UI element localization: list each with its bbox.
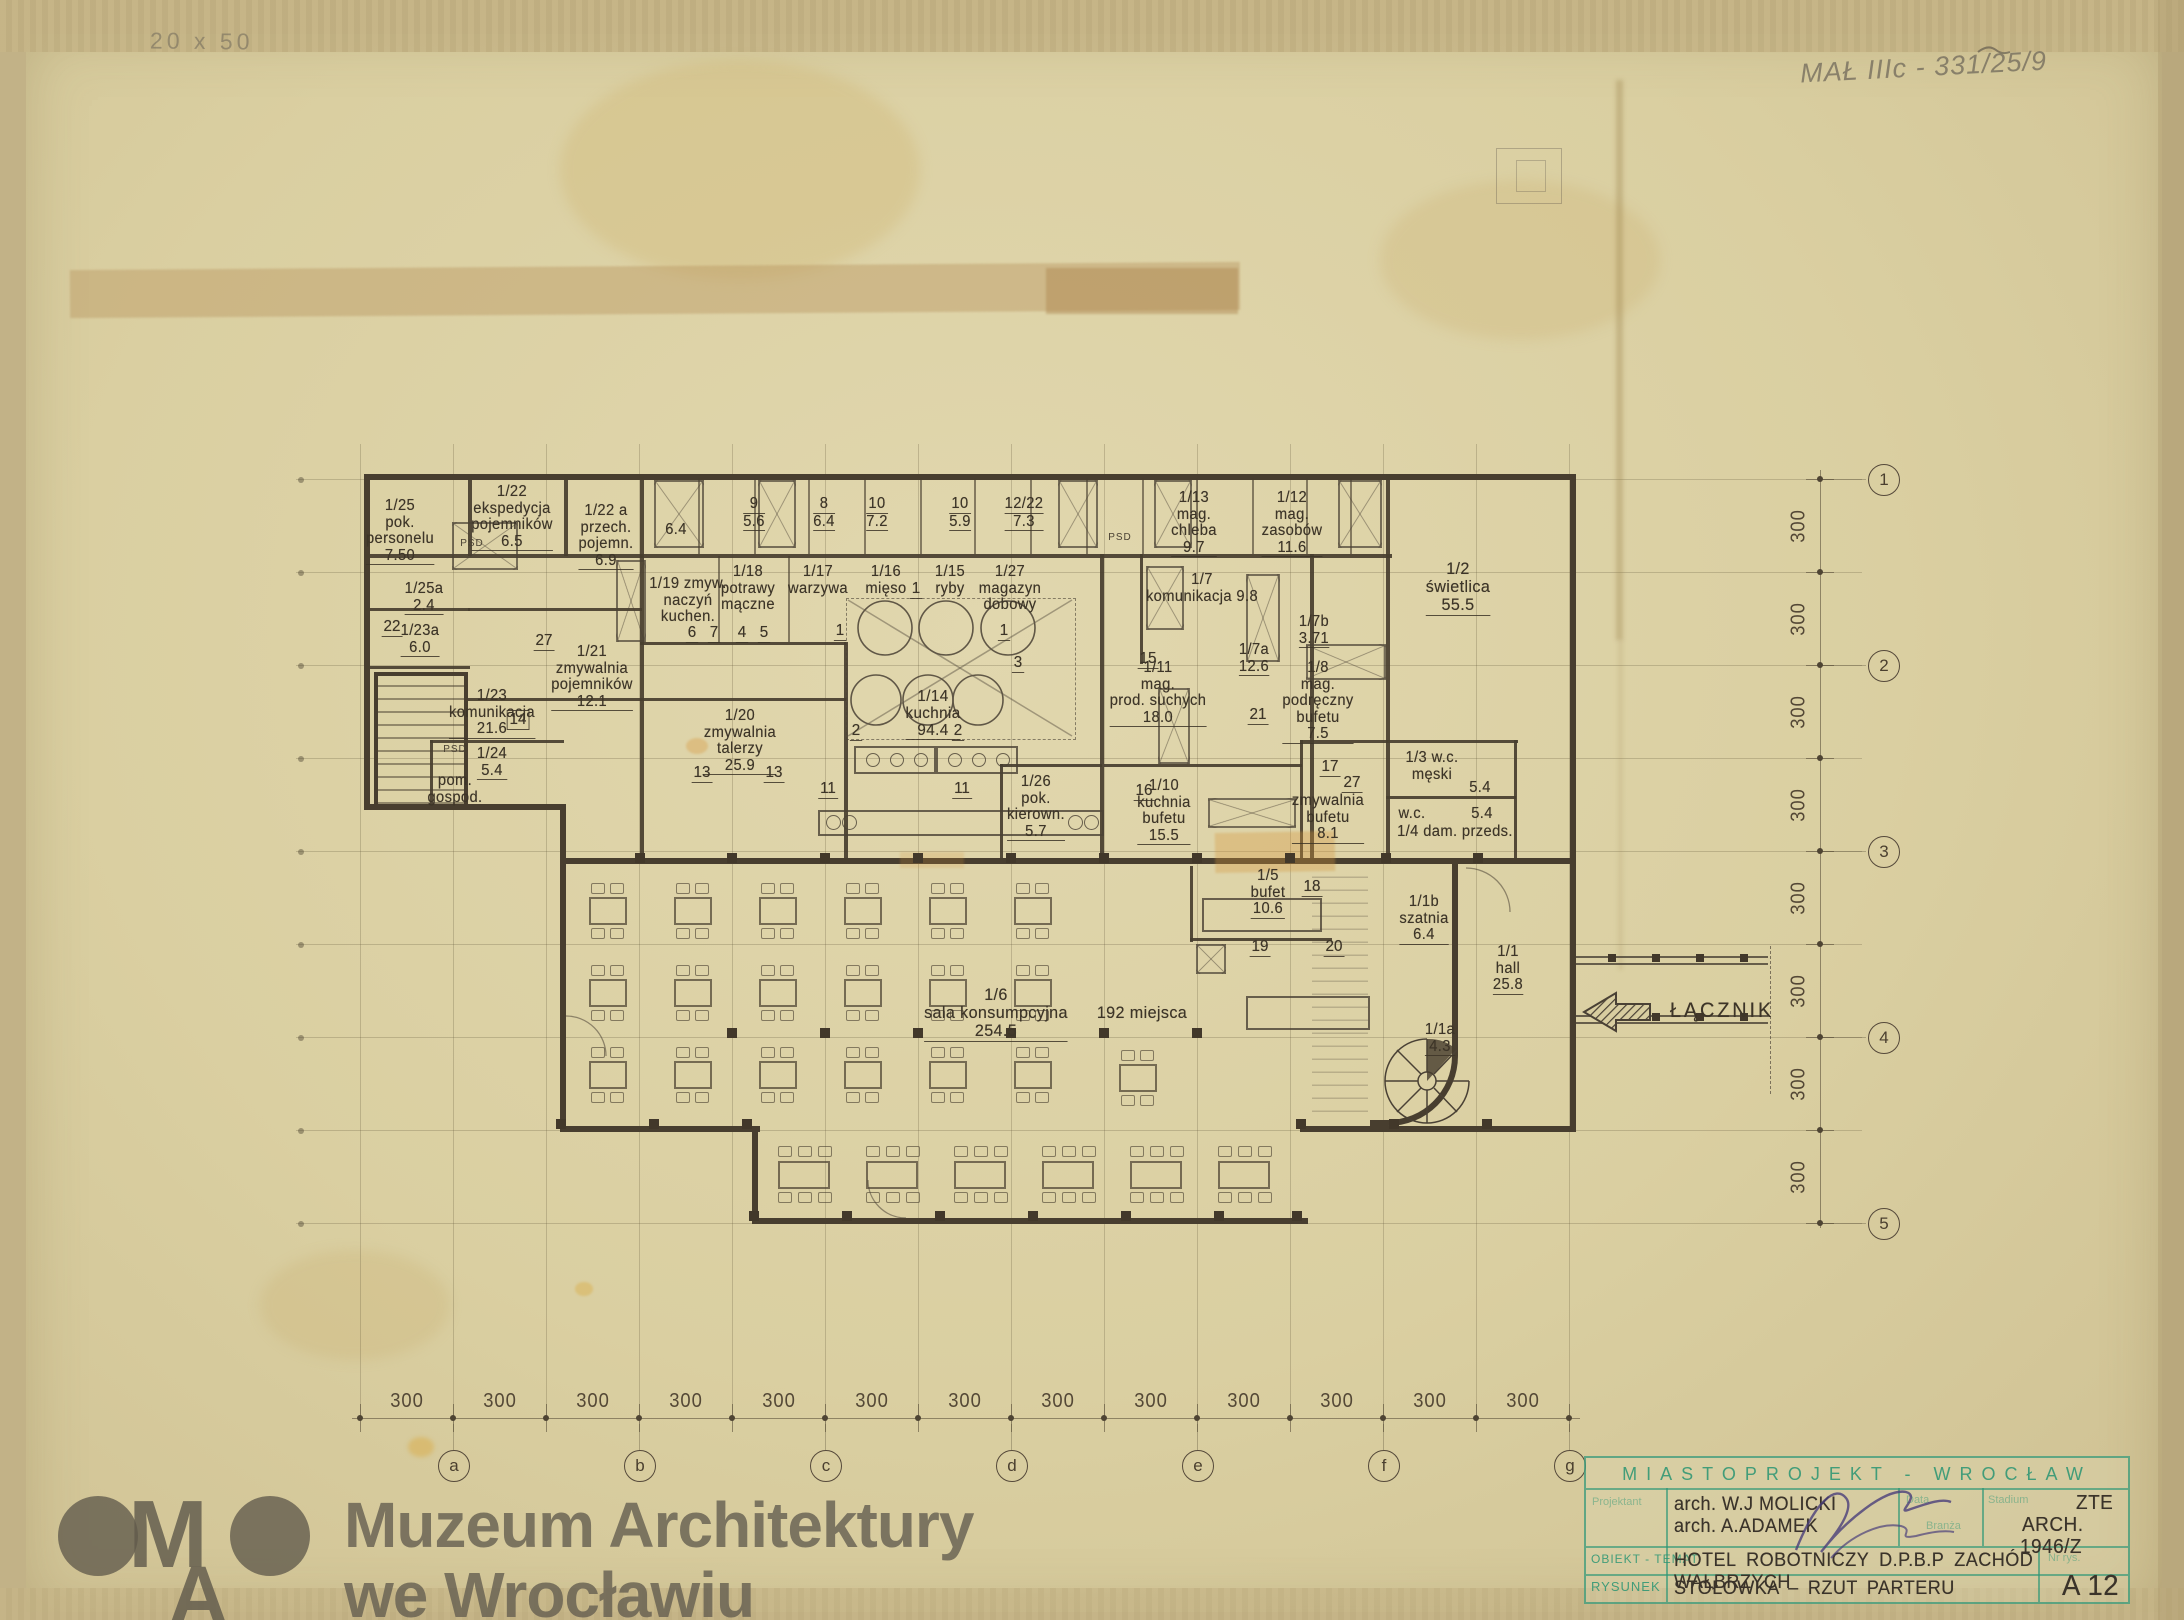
dim-label-300: 300	[576, 1390, 609, 1413]
chair-icon	[798, 1192, 812, 1203]
chair-icon	[1150, 1192, 1164, 1203]
chair-icon	[1238, 1146, 1252, 1157]
chair-icon	[695, 1047, 709, 1058]
wall-main	[1570, 474, 1576, 1132]
table-icon	[759, 1061, 797, 1089]
room-label-line: 1/6	[924, 986, 1068, 1004]
reference-number: 3	[1012, 654, 1024, 673]
counter-burner-icon	[914, 753, 928, 767]
structural-column	[635, 853, 645, 863]
chair-icon	[1062, 1146, 1076, 1157]
corridor-column	[1652, 954, 1660, 962]
dim-label-300: 300	[1788, 1067, 1811, 1100]
chair-icon	[954, 1192, 968, 1203]
connector-corridor-wall	[1576, 963, 1768, 965]
dim-label-300: 300	[1506, 1390, 1539, 1413]
dining-table-group	[663, 1042, 721, 1106]
corridor-column	[1696, 954, 1704, 962]
dim-dot	[1817, 1127, 1823, 1133]
room-label-line: 1/25a	[405, 581, 444, 598]
counter-burner-icon	[948, 753, 962, 767]
chair-icon	[1218, 1146, 1232, 1157]
structural-column	[1381, 853, 1391, 863]
room-label: 12/227.3	[1005, 496, 1044, 531]
table-icon	[589, 1061, 627, 1089]
room-label-line: 1/19 zmyw.	[649, 576, 726, 593]
table-icon	[844, 897, 882, 925]
room-label: 1/23a6.0	[401, 623, 440, 657]
table-icon	[1130, 1161, 1182, 1189]
structural-column	[649, 1119, 659, 1129]
room-label-line: podręczny	[1282, 693, 1353, 710]
chair-icon	[798, 1146, 812, 1157]
room-label-line: 1/23	[449, 688, 535, 705]
room-label: 1/7a12.6	[1239, 642, 1269, 676]
chair-icon	[591, 965, 605, 976]
chair-icon	[610, 965, 624, 976]
room-label-line: 12/22	[1005, 496, 1044, 514]
axis-letter: d	[996, 1450, 1028, 1482]
chair-icon	[1150, 1146, 1164, 1157]
reference-number: 1	[834, 622, 846, 641]
room-label-line: hall	[1493, 961, 1523, 978]
axis-leader	[1822, 665, 1866, 666]
label-stage: Stadium	[1988, 1494, 2028, 1506]
room-label-line: dobowy	[979, 597, 1041, 614]
room-label-line: 15.5	[1137, 828, 1190, 846]
room-label-line: 12.1	[551, 694, 633, 712]
structural-column	[1192, 1028, 1202, 1038]
stage-value: ZTE	[2076, 1492, 2113, 1515]
chair-icon	[1035, 1092, 1049, 1103]
room-label: 1/1bszatnia6.4	[1399, 894, 1448, 945]
grid-left-dot	[298, 756, 304, 762]
dim-dot	[1817, 848, 1823, 854]
room-label-line: 1/7a	[1239, 642, 1269, 659]
storage-rack-icon	[1338, 480, 1382, 548]
room-label: pom.gospod.	[427, 773, 482, 806]
chair-icon	[1218, 1192, 1232, 1203]
chair-icon	[865, 1010, 879, 1021]
room-label-line: 1/5	[1251, 868, 1286, 885]
reference-number: 2	[850, 722, 862, 741]
room-label-line: mag.	[1171, 507, 1217, 524]
wall-main	[560, 1126, 760, 1132]
room-label-line: 1/26	[1007, 774, 1065, 791]
bottom-dim-line	[352, 1418, 1580, 1419]
dining-table-group	[1210, 1142, 1276, 1206]
dining-table-group	[1003, 1042, 1061, 1106]
dim-dot	[1817, 569, 1823, 575]
chair-icon	[1130, 1192, 1144, 1203]
grid-line-horizontal	[296, 944, 1862, 945]
serving-counter	[854, 746, 936, 774]
chair-icon	[591, 1010, 605, 1021]
wall-main	[1300, 1126, 1576, 1132]
chair-icon	[1238, 1192, 1252, 1203]
grid-line-horizontal	[296, 758, 1862, 759]
axis-letter: f	[1368, 1450, 1400, 1482]
axis-leader	[453, 1424, 454, 1450]
grid-line-vertical	[1290, 444, 1291, 1420]
counter-burner-icon	[842, 815, 857, 830]
room-label: 1/11mag.prod. suchych18.0	[1110, 660, 1207, 727]
wall-main	[560, 804, 566, 1132]
reference-number: 18	[1302, 878, 1323, 897]
table-icon	[778, 1161, 830, 1189]
room-label-line: naczyń	[649, 593, 726, 610]
dim-label-300: 300	[1788, 695, 1811, 728]
room-label-line: 5.4	[1469, 780, 1491, 797]
room-label: 1/27magazyndobowy	[979, 564, 1041, 614]
chair-icon	[676, 928, 690, 939]
chair-icon	[846, 1010, 860, 1021]
structural-column	[1099, 853, 1109, 863]
chair-icon	[1140, 1095, 1154, 1106]
dim-dot	[1566, 1415, 1572, 1421]
chair-icon	[695, 1010, 709, 1021]
counter-burner-icon	[972, 753, 986, 767]
room-label-line: przech.	[578, 520, 633, 537]
axis-leader	[1822, 1037, 1866, 1038]
room-label: 1/6sala konsumpcyjna254.5	[924, 986, 1068, 1042]
room-label-line: pok.	[366, 515, 434, 532]
structural-column	[742, 1119, 752, 1129]
room-label-line: 9.7	[1171, 540, 1217, 558]
structural-column	[1028, 1211, 1038, 1221]
dining-table-group	[1122, 1142, 1188, 1206]
chair-icon	[695, 1092, 709, 1103]
psd-label: PSD	[443, 744, 467, 755]
grid-left-dot	[298, 1128, 304, 1134]
room-partition	[974, 478, 976, 554]
room-label-line: bufetu	[1282, 710, 1353, 727]
wall-partition	[1386, 740, 1518, 743]
dining-table-group	[1108, 1045, 1166, 1109]
room-label-line: 7.5	[1282, 726, 1353, 744]
grid-left-dot	[298, 570, 304, 576]
room-label-line: ekspedycja	[471, 501, 553, 518]
dim-dot	[1817, 476, 1823, 482]
axis-number: 4	[1868, 1022, 1900, 1054]
dim-dot	[1194, 1415, 1200, 1421]
chair-icon	[866, 1192, 880, 1203]
structural-column	[727, 1028, 737, 1038]
room-label: 1/1a4.3	[1425, 1022, 1455, 1056]
room-label-line: chleba	[1171, 523, 1217, 540]
chair-icon	[610, 1047, 624, 1058]
floor-plan: 300300300300300300300300300300300300300a…	[0, 0, 2184, 1620]
room-label-line: pok.	[1007, 791, 1065, 808]
room-label-line: 1/20	[704, 708, 776, 725]
wall-main	[1104, 858, 1576, 864]
room-label-line: męski	[1406, 767, 1459, 784]
dim-dot	[1008, 1415, 1014, 1421]
room-label-line: mag.	[1282, 677, 1353, 694]
room-label-line: komunikacja 9.8	[1146, 589, 1258, 606]
crease-line	[1618, 640, 1623, 970]
grid-left-dot	[298, 1221, 304, 1227]
axis-leader	[1011, 1424, 1012, 1450]
room-label-line: pojemników	[471, 517, 553, 534]
axis-leader	[1569, 1424, 1570, 1450]
counter-burner-icon	[996, 753, 1010, 767]
room-label-line: gospod.	[427, 790, 482, 807]
dim-label-300: 300	[1788, 509, 1811, 542]
reference-number: 11	[818, 780, 838, 799]
storage-rack-icon	[1208, 798, 1296, 828]
chair-icon	[865, 1092, 879, 1103]
chair-icon	[818, 1146, 832, 1157]
room-label-line: 254.5	[924, 1022, 1068, 1041]
room-label: 1/22 aprzech.pojemn.6.9	[578, 503, 633, 570]
room-label-line: 1/13	[1171, 490, 1217, 507]
room-label-line: 10.6	[1251, 901, 1286, 919]
wall-main	[752, 1126, 758, 1224]
chair-icon	[950, 928, 964, 939]
room-label-line: 1/1a	[1425, 1022, 1455, 1039]
axis-leader	[1383, 1424, 1384, 1450]
chair-icon	[1140, 1050, 1154, 1061]
room-label-line: mag.	[1110, 677, 1207, 694]
room-label: zmywalniabufetu8.1	[1292, 793, 1364, 844]
corridor-column	[1652, 1013, 1660, 1021]
reference-number: 13	[764, 764, 785, 783]
dim-dot	[543, 1415, 549, 1421]
room-label-line: 5.7	[1007, 824, 1065, 842]
reference-number: 2	[952, 722, 964, 741]
room-label-line: 1/3 w.c.	[1406, 750, 1459, 767]
grid-left-dot	[298, 849, 304, 855]
title-block: MIASTOPROJEKT - WROCŁAW Projektant Data …	[1584, 1456, 2130, 1604]
chair-icon	[591, 883, 605, 894]
chair-icon	[818, 1192, 832, 1203]
table-icon	[1014, 1061, 1052, 1089]
dining-table-group	[833, 878, 891, 942]
room-label: w.c.	[1399, 806, 1426, 823]
wall-partition	[564, 476, 568, 556]
room-label-line: 1/17	[788, 564, 848, 581]
counter-burner-icon	[866, 753, 880, 767]
chair-icon	[780, 1010, 794, 1021]
wall-partition	[1104, 764, 1302, 767]
structural-column	[1192, 853, 1202, 863]
room-label-line: 10	[949, 496, 971, 514]
structural-column	[556, 1119, 566, 1129]
room-label-line: bufetu	[1137, 811, 1190, 828]
axis-leader	[639, 1424, 640, 1450]
dining-table-group	[748, 878, 806, 942]
room-label: 1/8mag.podręcznybufetu7.5	[1282, 660, 1353, 744]
dim-dot	[450, 1415, 456, 1421]
dim-label-300: 300	[1227, 1390, 1260, 1413]
dim-label-300: 300	[390, 1390, 423, 1413]
room-label-line: mączne	[721, 597, 775, 614]
psd-label: PSD	[460, 538, 484, 549]
room-label-line: prod. suchych	[1110, 693, 1207, 710]
room-label-line: 1/14	[905, 688, 960, 705]
room-label-line: 1/7b	[1299, 614, 1329, 631]
table-icon	[929, 897, 967, 925]
chair-icon	[1035, 928, 1049, 939]
dining-table-group	[748, 1042, 806, 1106]
chair-icon	[865, 883, 879, 894]
room-label-line: 5.4	[1471, 806, 1493, 823]
table-icon	[589, 897, 627, 925]
room-label-line: 6.4	[813, 514, 835, 532]
wall-main	[366, 474, 1574, 480]
dim-label-300: 300	[762, 1390, 795, 1413]
room-label: 1/25pok.personelu7.50	[366, 498, 434, 565]
dining-table-group	[946, 1142, 1012, 1206]
grid-left-dot	[298, 1035, 304, 1041]
room-label-line: 192 miejsca	[1097, 1004, 1187, 1022]
chair-icon	[950, 883, 964, 894]
wall-partition	[1386, 796, 1516, 799]
room-label-line: bufet	[1251, 885, 1286, 902]
chair-icon	[865, 965, 879, 976]
chair-icon	[761, 1092, 775, 1103]
chair-icon	[610, 883, 624, 894]
dining-table-group	[578, 878, 636, 942]
room-label-line: 3.71	[1299, 631, 1329, 649]
dim-dot	[1473, 1415, 1479, 1421]
chair-icon	[931, 965, 945, 976]
chair-icon	[974, 1192, 988, 1203]
room-label: 1/21zmywalniapojemników12.1	[551, 644, 633, 711]
room-label-line: zmywalnia	[704, 725, 776, 742]
room-label-line: 1/25	[366, 498, 434, 515]
room-label: 5.4	[1471, 806, 1493, 823]
axis-letter: g	[1554, 1450, 1586, 1482]
chair-icon	[1016, 1092, 1030, 1103]
room-label-line: kuchnia	[905, 705, 960, 722]
dining-table-group	[1003, 878, 1061, 942]
chair-icon	[1016, 1047, 1030, 1058]
axis-leader	[1822, 1223, 1866, 1224]
chair-icon	[761, 883, 775, 894]
structural-column	[1099, 1028, 1109, 1038]
structural-column	[820, 1028, 830, 1038]
room-label-line: 8	[813, 496, 835, 514]
grid-line-horizontal	[296, 851, 1862, 852]
dim-dot	[1817, 941, 1823, 947]
chair-icon	[1121, 1050, 1135, 1061]
room-partition	[1252, 478, 1254, 554]
room-label-line: pojemników	[551, 677, 633, 694]
dining-table-group	[578, 1042, 636, 1106]
room-label-line: pojemn.	[578, 536, 633, 553]
room-label-line: bufetu	[1292, 810, 1364, 827]
reference-number: 27	[1342, 774, 1363, 793]
reference-number: 27	[534, 632, 555, 651]
grid-line-horizontal	[296, 1130, 1862, 1131]
room-label-line: 1/23a	[401, 623, 440, 640]
chair-icon	[1170, 1192, 1184, 1203]
room-partition	[808, 478, 810, 554]
wall-partition	[1386, 474, 1390, 864]
structural-column	[913, 1028, 923, 1038]
dim-label-300: 300	[1788, 974, 1811, 1007]
chair-icon	[846, 883, 860, 894]
table-icon	[844, 979, 882, 1007]
grid-line-vertical	[1104, 444, 1105, 1420]
dim-dot	[1817, 662, 1823, 668]
room-label-line: kierown.	[1007, 807, 1065, 824]
room-label-line: 1/1	[1493, 944, 1523, 961]
room-label: 1/5bufet10.6	[1251, 868, 1286, 919]
buffet-counter	[1246, 996, 1370, 1030]
table-icon	[759, 979, 797, 1007]
psd-label: PSD	[1108, 532, 1132, 543]
room-label-line: 12.6	[1239, 659, 1269, 677]
room-label-line: 6.0	[401, 640, 440, 658]
chair-icon	[886, 1192, 900, 1203]
axis-letter: a	[438, 1450, 470, 1482]
chair-icon	[695, 928, 709, 939]
reference-number: 21	[1248, 706, 1269, 725]
table-icon	[844, 1061, 882, 1089]
wall-partition	[640, 698, 846, 701]
storage-rack-icon	[1196, 944, 1226, 974]
room-label-line: 1/16	[865, 564, 906, 581]
room-label-line: 1/22 a	[578, 503, 633, 520]
structural-column	[1482, 1119, 1492, 1129]
dim-dot	[1817, 1220, 1823, 1226]
dim-label-300: 300	[1041, 1390, 1074, 1413]
room-label: 1/15ryby	[935, 564, 965, 597]
dim-dot	[357, 1415, 363, 1421]
structural-column	[1214, 1211, 1224, 1221]
axis-letter: c	[810, 1450, 842, 1482]
dim-label-300: 300	[1320, 1390, 1353, 1413]
reference-number: 17	[1320, 758, 1341, 777]
dim-label-300: 300	[1788, 1160, 1811, 1193]
axis-letter: b	[624, 1450, 656, 1482]
room-partition	[1142, 478, 1144, 554]
reference-number: 7	[708, 624, 720, 643]
room-label-line: 6.4	[1399, 927, 1448, 945]
table-icon	[759, 897, 797, 925]
chair-icon	[1035, 965, 1049, 976]
room-label-line: 1/22	[471, 484, 553, 501]
room-label-line: 7.50	[366, 548, 434, 566]
room-label-line: personelu	[366, 531, 434, 548]
grid-line-horizontal	[296, 1037, 1862, 1038]
table-icon	[1119, 1064, 1157, 1092]
room-label-line: w.c.	[1399, 806, 1426, 823]
chair-icon	[1170, 1146, 1184, 1157]
room-label-line: mięso	[865, 581, 906, 598]
chair-icon	[591, 928, 605, 939]
room-label-line: 55.5	[1426, 596, 1490, 615]
chair-icon	[676, 1010, 690, 1021]
chair-icon	[1130, 1146, 1144, 1157]
table-icon	[954, 1161, 1006, 1189]
chair-icon	[1035, 883, 1049, 894]
counter-burner-icon	[826, 815, 841, 830]
dim-dot	[636, 1415, 642, 1421]
chair-icon	[1016, 965, 1030, 976]
reference-number: 16	[1134, 782, 1155, 801]
chair-icon	[610, 1092, 624, 1103]
room-label-line: 1/21	[551, 644, 633, 661]
chair-icon	[1042, 1192, 1056, 1203]
dining-table-group	[663, 960, 721, 1024]
room-label: 95.6	[743, 496, 765, 531]
chair-icon	[780, 1047, 794, 1058]
room-label-line: zmywalnia	[551, 661, 633, 678]
